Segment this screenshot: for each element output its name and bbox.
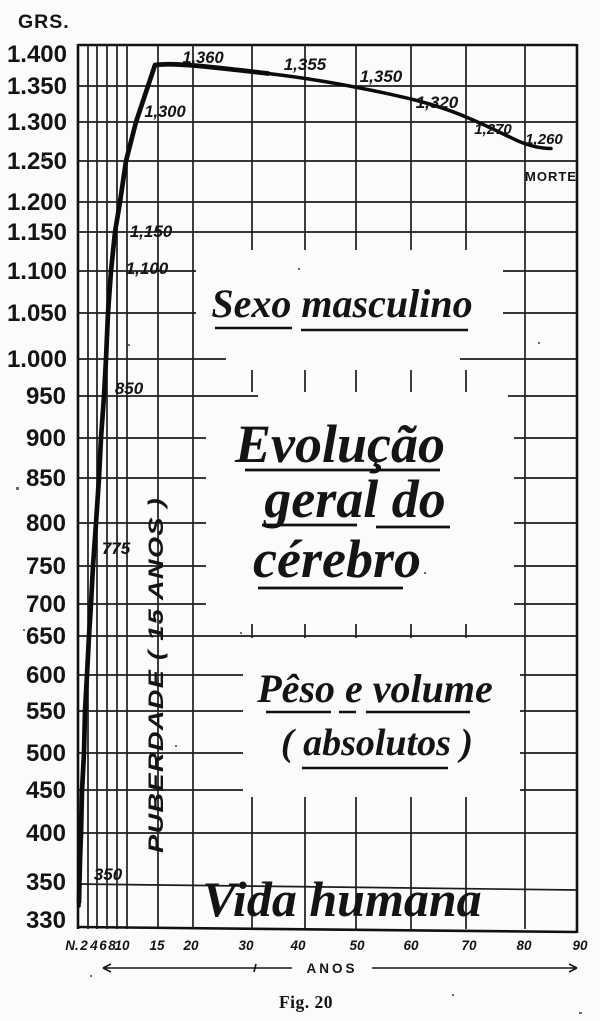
svg-text:60: 60: [403, 938, 419, 953]
svg-text:950: 950: [26, 383, 66, 410]
svg-text:80: 80: [516, 938, 532, 953]
svg-text:1.400: 1.400: [7, 41, 67, 68]
svg-text:6: 6: [99, 938, 107, 953]
svg-text:1,150: 1,150: [130, 222, 173, 241]
svg-text:Sexo masculino: Sexo masculino: [211, 281, 472, 326]
svg-text:400: 400: [26, 820, 66, 847]
svg-text:450: 450: [26, 777, 66, 804]
svg-text:1.250: 1.250: [7, 148, 67, 175]
svg-text:15: 15: [149, 938, 165, 953]
svg-text:Pêso e volume: Pêso e volume: [256, 666, 493, 711]
svg-text:10: 10: [114, 938, 130, 953]
svg-text:MORTE: MORTE: [525, 169, 577, 184]
svg-text:30: 30: [238, 938, 254, 953]
svg-text:1.150: 1.150: [7, 219, 67, 246]
svg-text:( absolutos ): ( absolutos ): [281, 722, 473, 764]
svg-text:Vida humana: Vida humana: [202, 871, 481, 927]
svg-text:1,260: 1,260: [525, 131, 563, 148]
svg-text:50: 50: [349, 938, 365, 953]
svg-text:20: 20: [182, 938, 199, 953]
svg-text:Fig. 20: Fig. 20: [279, 992, 333, 1012]
svg-text:1,270: 1,270: [474, 121, 512, 138]
svg-text:PUBERDADE ( 15 ANOS ): PUBERDADE ( 15 ANOS ): [144, 497, 168, 853]
svg-text:800: 800: [26, 510, 66, 537]
svg-text:1,360: 1,360: [182, 49, 224, 67]
svg-text:cérebro: cérebro: [253, 529, 421, 589]
svg-text:600: 600: [26, 662, 66, 689]
svg-text:1,320: 1,320: [416, 93, 459, 112]
svg-text:1,350: 1,350: [360, 67, 403, 86]
svg-text:550: 550: [26, 698, 66, 725]
svg-text:GRS.: GRS.: [18, 11, 70, 33]
svg-text:1.000: 1.000: [7, 346, 67, 373]
svg-text:N.: N.: [65, 938, 79, 953]
svg-text:geral do: geral do: [263, 469, 446, 529]
svg-text:850: 850: [26, 465, 66, 492]
svg-text:850: 850: [115, 379, 144, 398]
svg-text:1.050: 1.050: [7, 300, 67, 327]
svg-text:Evolução: Evolução: [234, 414, 445, 474]
svg-text:2: 2: [79, 938, 88, 953]
svg-text:1,355: 1,355: [284, 55, 327, 74]
svg-text:900: 900: [26, 425, 66, 452]
svg-text:775: 775: [102, 539, 131, 558]
svg-text:70: 70: [461, 938, 477, 953]
svg-text:650: 650: [26, 623, 66, 650]
svg-text:1,100: 1,100: [126, 259, 169, 278]
svg-text:1,300: 1,300: [144, 103, 186, 121]
svg-text:1.200: 1.200: [7, 189, 67, 216]
svg-text:500: 500: [26, 740, 66, 767]
svg-text:1.100: 1.100: [7, 258, 67, 285]
svg-text:4: 4: [89, 938, 98, 953]
svg-text:1.350: 1.350: [7, 73, 67, 100]
svg-text:350: 350: [26, 869, 66, 896]
svg-text:700: 700: [26, 591, 66, 618]
svg-text:330: 330: [26, 907, 66, 934]
svg-text:ANOS: ANOS: [306, 961, 357, 976]
svg-text:90: 90: [572, 938, 588, 953]
svg-text:1.300: 1.300: [7, 109, 67, 136]
svg-text:350: 350: [94, 865, 123, 884]
svg-text:40: 40: [289, 938, 306, 953]
svg-text:750: 750: [26, 553, 66, 580]
